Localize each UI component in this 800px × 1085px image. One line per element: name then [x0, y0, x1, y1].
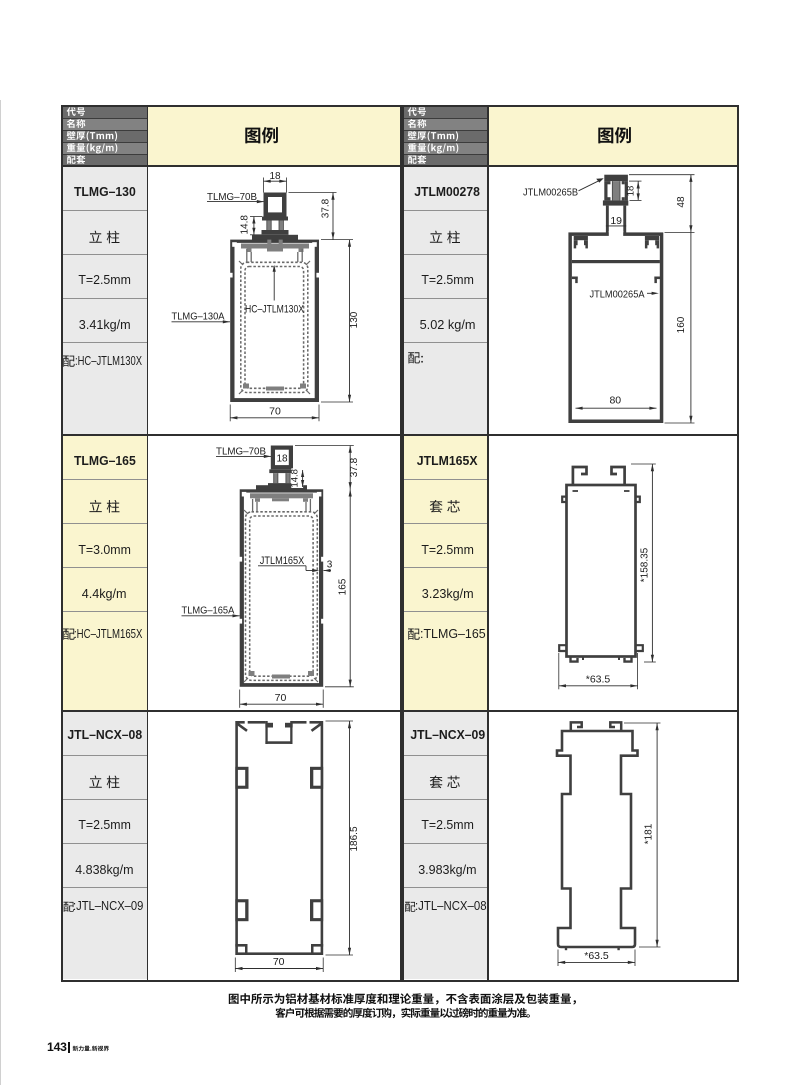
svg-text:186.5: 186.5: [349, 826, 360, 851]
svg-text:18: 18: [276, 453, 288, 464]
svg-text:80: 80: [609, 394, 621, 406]
svg-text:19: 19: [610, 215, 622, 227]
svg-text:TLMG–70B: TLMG–70B: [216, 446, 266, 458]
svg-text:18: 18: [269, 171, 281, 182]
svg-text:18: 18: [626, 186, 637, 197]
svg-text:JTLM165X: JTLM165X: [260, 555, 305, 567]
svg-text:JTLM00265A: JTLM00265A: [590, 288, 645, 300]
svg-text:TLMG–70B: TLMG–70B: [207, 191, 257, 203]
svg-text:*181: *181: [644, 823, 655, 844]
svg-text:70: 70: [273, 956, 285, 968]
svg-text:HC–JTLM130X: HC–JTLM130X: [245, 303, 305, 315]
svg-text:70: 70: [269, 406, 281, 418]
svg-text:160: 160: [676, 316, 687, 333]
svg-text:*63.5: *63.5: [584, 950, 609, 962]
svg-text:*158.35: *158.35: [639, 547, 650, 582]
svg-text:48: 48: [676, 196, 687, 208]
svg-text:130: 130: [349, 311, 360, 328]
svg-text:165: 165: [337, 578, 348, 595]
svg-text:*63.5: *63.5: [586, 673, 611, 685]
svg-text:TLMG–165A: TLMG–165A: [182, 605, 235, 617]
svg-text:37.8: 37.8: [349, 457, 360, 477]
svg-text:JTLM00265B: JTLM00265B: [523, 186, 578, 198]
svg-text:70: 70: [275, 692, 287, 704]
svg-text:37.8: 37.8: [320, 198, 331, 218]
svg-text:14.8: 14.8: [240, 215, 251, 235]
svg-text:3: 3: [327, 559, 333, 570]
svg-text:TLMG–130A: TLMG–130A: [172, 311, 225, 323]
svg-text:14.8: 14.8: [289, 469, 300, 488]
